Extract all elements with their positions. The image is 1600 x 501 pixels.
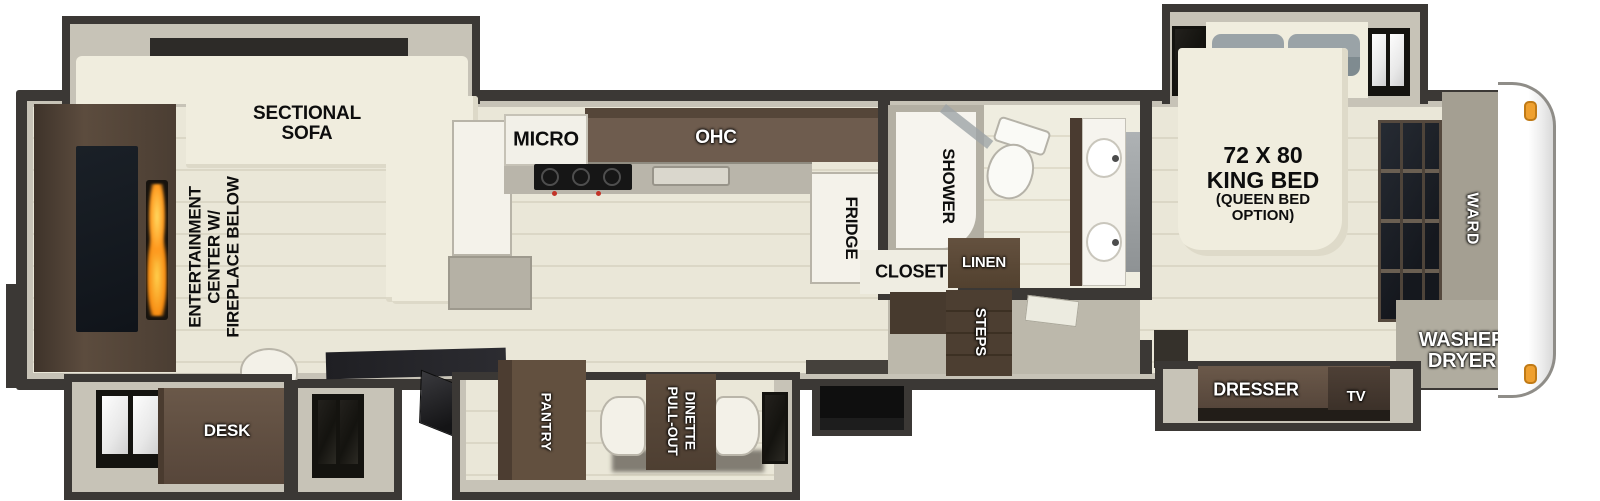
hallway-wall-segment [1140,340,1152,374]
bed-size-label: 72 X 80 KING BED [1207,143,1319,191]
bed-option-label: (QUEEN BED OPTION) [1216,192,1310,225]
closet-label: CLOSET [875,262,947,281]
ward-label: WARD [1463,193,1480,246]
fireplace-flame [147,184,167,316]
micro-label: MICRO [513,129,579,150]
steps-label: STEPS [972,308,988,356]
cooktop-knob-2 [596,191,601,196]
kitchen-island-base [448,256,532,310]
tv-label: TV [1347,389,1366,405]
bathroom-right-wall [1140,100,1152,300]
ohc-label: OHC [695,128,737,148]
front-cap [1498,82,1556,398]
desk-window-pane-left [102,396,128,454]
cooktop-burner-1 [541,168,559,186]
marker-light-bottom [1524,364,1537,384]
marker-light-top [1524,101,1537,121]
bedroom-window-right-pane [1372,34,1386,86]
sectional-sofa-label: SECTIONAL SOFA [253,104,361,144]
rv-floorplan: SECTIONAL SOFA ENTERTAINMENT CENTER W/ F… [0,0,1600,501]
bump-window-pane-left [318,400,336,464]
vanity-faucet-2 [1112,239,1119,246]
bump-window-pane-right [340,400,358,464]
fireplace-tv-screen [76,146,138,332]
washer-dryer-label: WASHER DRYER [1419,330,1506,372]
entry-steps [820,386,904,430]
dinette-chair-right [714,396,760,456]
desk-window-pane-right [133,396,159,454]
kitchen-tall-cabinet [452,120,512,256]
ward-doors [1378,120,1442,322]
dinette-slide-window [762,392,788,464]
bump-window [312,394,364,478]
shower-pan [896,112,976,248]
fridge-label: FRIDGE [842,196,860,259]
shower-label: SHOWER [939,148,957,223]
linen-label: LINEN [962,255,1006,271]
entertainment-label: ENTERTAINMENT CENTER W/ FIREPLACE BELOW [185,152,242,362]
vanity-cabinet-edge [1070,118,1082,286]
bedroom-window-right [1366,28,1410,96]
dresser-label: DRESSER [1213,380,1299,399]
dinette-chair-left [600,396,646,456]
dinette-label: PULL-OUT DINETTE [664,386,699,455]
kitchen-sink [652,166,730,186]
vanity-faucet-1 [1112,155,1119,162]
cooktop-burner-2 [572,168,590,186]
bed-label-block: 72 X 80 KING BED (QUEEN BED OPTION) [1178,136,1348,232]
desk-label: DESK [204,422,250,440]
cooktop-knob-1 [552,191,557,196]
bedroom-window-right-pane2 [1390,34,1404,86]
vanity-mirror [1126,132,1140,272]
pantry-label: PANTRY [539,393,554,452]
cooktop-burner-3 [603,168,621,186]
desk-window [96,390,166,468]
